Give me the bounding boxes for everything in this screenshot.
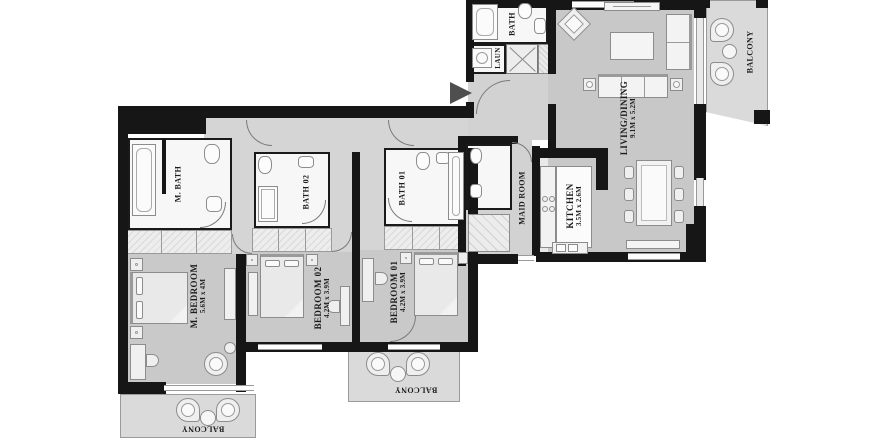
dining-chair xyxy=(674,166,684,179)
lamp-icon xyxy=(673,81,680,88)
window-bench xyxy=(626,240,680,249)
lamp-icon xyxy=(405,257,407,259)
lamp-icon xyxy=(311,259,313,261)
m-bedroom-closet xyxy=(126,230,232,254)
sink-icon xyxy=(534,18,546,34)
closet-cell xyxy=(413,227,441,249)
stove-burner-icon xyxy=(542,196,548,202)
washer-icon xyxy=(472,48,492,68)
closet-cell xyxy=(127,231,162,253)
lamp-icon xyxy=(586,81,593,88)
balcony-chair xyxy=(216,398,240,422)
window xyxy=(164,385,254,391)
room-label-bath: BATH xyxy=(507,12,516,36)
room-label-maid: MAID ROOM xyxy=(517,171,526,225)
stove-burner-icon xyxy=(549,206,555,212)
wall xyxy=(548,104,556,150)
dining-chair xyxy=(624,166,634,179)
bed xyxy=(130,272,188,324)
balcony-table xyxy=(722,44,737,59)
dining-table xyxy=(636,160,672,226)
pillow xyxy=(284,260,299,267)
sink-icon xyxy=(206,196,222,212)
wall xyxy=(596,148,608,190)
room-label-m-bath: M. BATH xyxy=(173,166,182,202)
entry-closet xyxy=(506,44,538,74)
bed-fold xyxy=(285,299,303,317)
lamp-icon xyxy=(251,259,253,261)
closet-cell xyxy=(162,231,197,253)
pillow xyxy=(136,277,143,295)
side-table xyxy=(670,78,683,91)
stove-burner-icon xyxy=(549,196,555,202)
washer-drum xyxy=(476,52,488,64)
toilet-icon xyxy=(204,144,220,164)
side-table xyxy=(583,78,596,91)
desk-chair xyxy=(375,272,388,285)
bed-fold xyxy=(439,297,457,315)
desk xyxy=(362,258,374,302)
wall xyxy=(694,104,706,180)
closet-cell xyxy=(385,227,413,249)
room-label-bath01: BATH 01 xyxy=(397,171,406,206)
balcony-chair xyxy=(366,352,390,376)
desk xyxy=(130,344,146,380)
room-label-kitchen: KITCHEN 3.5M x 2.6M xyxy=(565,183,583,228)
room-label-balcony-top: BALCONY xyxy=(745,31,754,74)
lamp-icon xyxy=(135,263,138,266)
balcony-door xyxy=(696,18,704,104)
dresser xyxy=(224,268,236,320)
room-label-bedroom01: BEDROOM 01 4.2M x 3.9M xyxy=(389,261,407,324)
bathtub-icon xyxy=(448,152,464,220)
room-label-bath02: BATH 02 xyxy=(301,175,310,210)
shower-icon xyxy=(258,186,278,222)
wall xyxy=(118,106,128,394)
room-label-balcony-left: BALCONY xyxy=(182,424,225,433)
balcony-door xyxy=(388,344,440,350)
kitchen-sink-icon xyxy=(556,244,566,252)
bathtub-icon xyxy=(472,4,498,40)
maid-bed xyxy=(468,214,510,252)
closet-cell xyxy=(197,231,231,253)
closet-cell xyxy=(253,229,279,251)
dining-chair xyxy=(624,210,634,223)
wall xyxy=(532,146,540,256)
nightstand xyxy=(130,326,143,339)
pillow xyxy=(438,258,453,265)
window xyxy=(628,253,680,260)
wall xyxy=(754,110,770,124)
entrance-arrow-icon xyxy=(450,82,472,104)
side-table xyxy=(224,342,236,354)
dresser xyxy=(248,272,258,316)
window xyxy=(258,344,322,350)
wall xyxy=(458,136,518,144)
wall xyxy=(466,102,474,118)
armchair-seat xyxy=(209,357,223,371)
room-label-laundry: LAUN xyxy=(494,47,502,68)
nightstand xyxy=(130,258,143,271)
wall xyxy=(700,0,710,8)
sink-icon xyxy=(298,156,314,168)
wall xyxy=(236,254,246,392)
window xyxy=(518,255,534,261)
wall xyxy=(118,382,166,394)
balcony-chair xyxy=(406,352,430,376)
chair-seat xyxy=(715,23,729,37)
pillow xyxy=(265,260,280,267)
sofa-cushion xyxy=(667,43,689,70)
pillow xyxy=(419,258,434,265)
bed xyxy=(414,252,458,316)
wall xyxy=(452,342,468,352)
kitchen-sink-icon xyxy=(568,244,578,252)
room-label-m-bedroom: M. BEDROOM 5.6M x 4M xyxy=(189,264,207,329)
chair-seat xyxy=(371,357,385,371)
nightstand xyxy=(306,254,318,266)
chair-seat xyxy=(411,357,425,371)
lamp-icon xyxy=(135,331,138,334)
wall xyxy=(118,106,206,134)
balcony-chair xyxy=(710,62,734,86)
wall xyxy=(548,0,556,74)
armchair xyxy=(204,352,228,376)
toilet-icon xyxy=(518,3,532,19)
toilet-icon xyxy=(470,148,482,164)
bedroom01-closet xyxy=(384,226,468,250)
sofa-cushion xyxy=(645,77,667,97)
desk xyxy=(340,286,350,326)
balcony-chair xyxy=(710,18,734,42)
balcony-chair xyxy=(176,398,200,422)
dining-chair xyxy=(624,188,634,201)
window xyxy=(696,178,704,206)
tv-console xyxy=(604,2,660,11)
stove-burner-icon xyxy=(542,206,548,212)
bed-fold xyxy=(169,305,187,323)
sofa-cushion xyxy=(667,15,689,43)
closet-cell xyxy=(279,229,305,251)
coffee-table xyxy=(610,32,654,60)
chair-seat xyxy=(221,403,235,417)
loveseat xyxy=(666,14,692,70)
desk-chair xyxy=(146,354,159,367)
wall xyxy=(686,224,706,262)
toilet-icon xyxy=(416,152,430,170)
closet-cell xyxy=(306,229,331,251)
bed xyxy=(260,254,304,318)
room-label-balcony-mid: BALCONY xyxy=(395,385,438,394)
toilet-icon xyxy=(258,156,272,174)
nightstand xyxy=(458,252,468,264)
sink-icon xyxy=(470,184,482,198)
balcony-table xyxy=(390,366,406,382)
chair-seat xyxy=(181,403,195,417)
nightstand xyxy=(246,254,258,266)
room-label-living: LIVING/DINING 9.1M x 5.2M xyxy=(619,81,637,155)
floor-plan: M. BEDROOM 5.6M x 4M BEDROOM 02 4.2M x 3… xyxy=(0,0,890,440)
wall xyxy=(756,0,768,8)
pillow xyxy=(136,301,143,319)
dining-chair xyxy=(674,210,684,223)
room-label-bedroom02: BEDROOM 02 4.2M x 3.9M xyxy=(313,267,331,330)
bedroom02-closet xyxy=(252,228,332,252)
bedroom01-entry-strip xyxy=(360,152,384,250)
wall xyxy=(162,138,166,194)
wall xyxy=(532,148,600,158)
chair-seat xyxy=(715,67,729,81)
wall xyxy=(352,152,360,342)
dining-chair xyxy=(674,188,684,201)
bathtub-icon xyxy=(132,144,156,216)
